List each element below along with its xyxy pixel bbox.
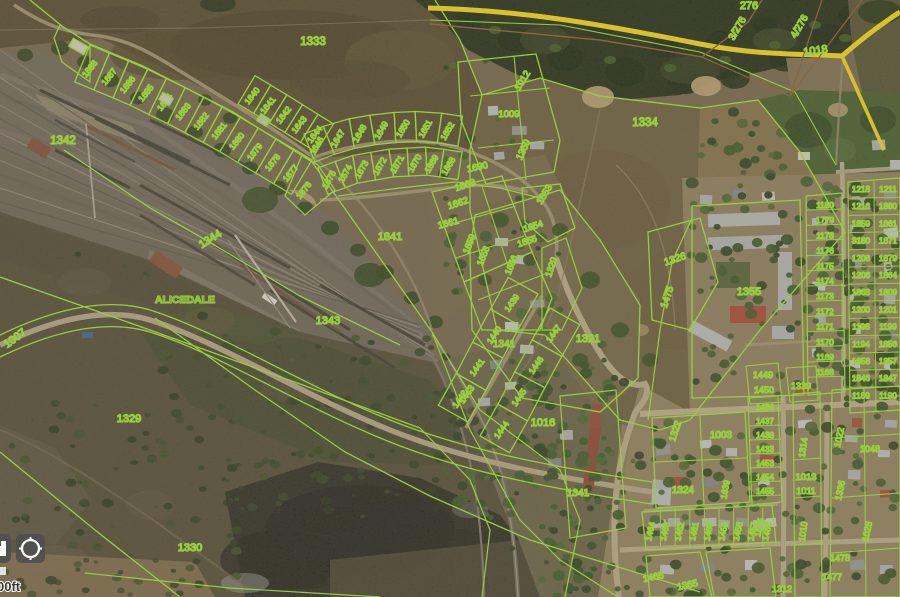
svg-text:00ft: 00ft xyxy=(0,579,21,594)
